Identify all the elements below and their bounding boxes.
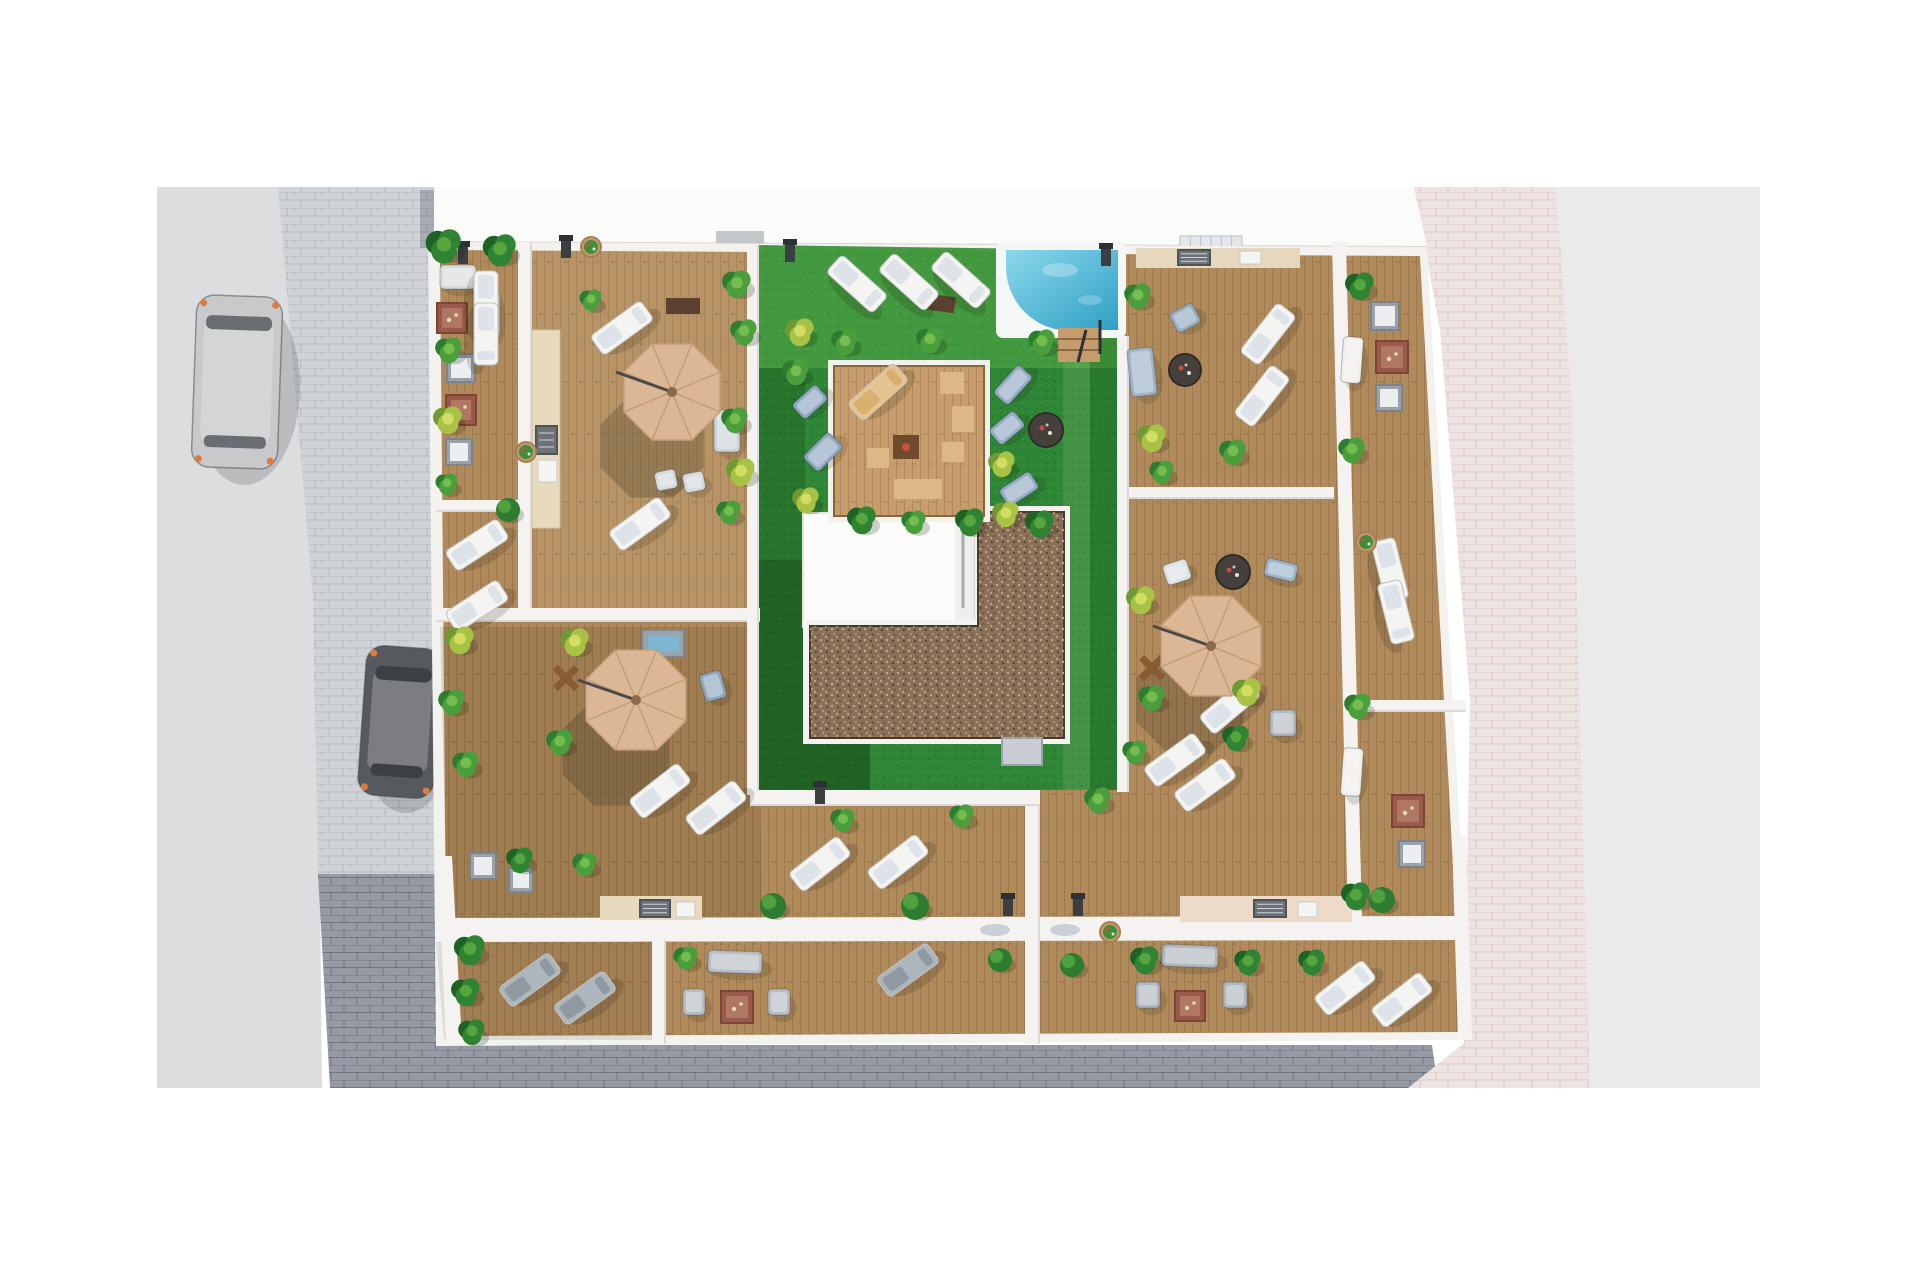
flower-pot: [581, 237, 601, 257]
fire-table: [1175, 991, 1205, 1021]
dark-post: [783, 239, 797, 262]
dark-post: [559, 235, 573, 258]
sun-lounger: [464, 303, 498, 374]
dark-post: [1071, 893, 1085, 916]
round-table: [1169, 354, 1201, 386]
counter-box: [1298, 902, 1317, 917]
ottoman-tan: [867, 448, 889, 468]
roof-band-top: [434, 187, 1427, 247]
building-core-roof: [803, 513, 975, 627]
bench-tan: [894, 479, 942, 499]
flower-pot: [516, 442, 536, 462]
dark-table: [666, 298, 700, 314]
ottoman-tan: [940, 372, 964, 394]
planter-cube: [446, 439, 472, 465]
table-accent: [902, 443, 910, 451]
pool-ripple: [1078, 295, 1102, 305]
bbq-grill: [536, 426, 557, 454]
bbq-grill: [1178, 250, 1210, 265]
round-table: [1029, 413, 1063, 447]
counter-box: [676, 902, 695, 917]
dark-post: [813, 781, 827, 804]
fire-table: [721, 991, 753, 1023]
rooftop-render-stage: [0, 0, 1920, 1280]
planter-cube: [1399, 841, 1425, 867]
counter-box: [1240, 251, 1261, 264]
divider-wall: [518, 242, 532, 614]
flower-pot: [1100, 922, 1120, 942]
post-shadow: [1050, 924, 1080, 936]
ac-unit: [1002, 738, 1042, 765]
divider-wall: [1025, 790, 1040, 1044]
bbq-grill: [640, 900, 670, 917]
divider-wall: [652, 940, 666, 1044]
post-shadow: [980, 924, 1010, 936]
planter-cube: [1371, 302, 1399, 330]
fire-table: [1376, 341, 1408, 373]
fire-table: [437, 303, 467, 333]
divider-wall: [750, 790, 1040, 806]
bbq-grill: [1254, 900, 1286, 917]
aerial-rooftop-render: [0, 0, 1920, 1280]
street-right: [1556, 187, 1760, 1088]
counter-box: [538, 460, 557, 482]
ottoman-tan: [942, 442, 964, 462]
divider-wall: [1117, 336, 1129, 792]
dark-post: [1001, 893, 1015, 916]
pool-ripple: [1042, 263, 1078, 277]
ottoman-tan: [952, 406, 974, 432]
dark-post: [1099, 243, 1113, 266]
flower-pot: [1356, 532, 1376, 552]
divider-wall: [1129, 487, 1334, 499]
counter-beige: [1136, 248, 1300, 268]
round-table: [1216, 555, 1250, 589]
fire-table: [1392, 795, 1424, 827]
planter-cube: [1376, 385, 1402, 411]
planter-cube: [470, 853, 496, 879]
lawn-dark-mid: [757, 368, 805, 560]
